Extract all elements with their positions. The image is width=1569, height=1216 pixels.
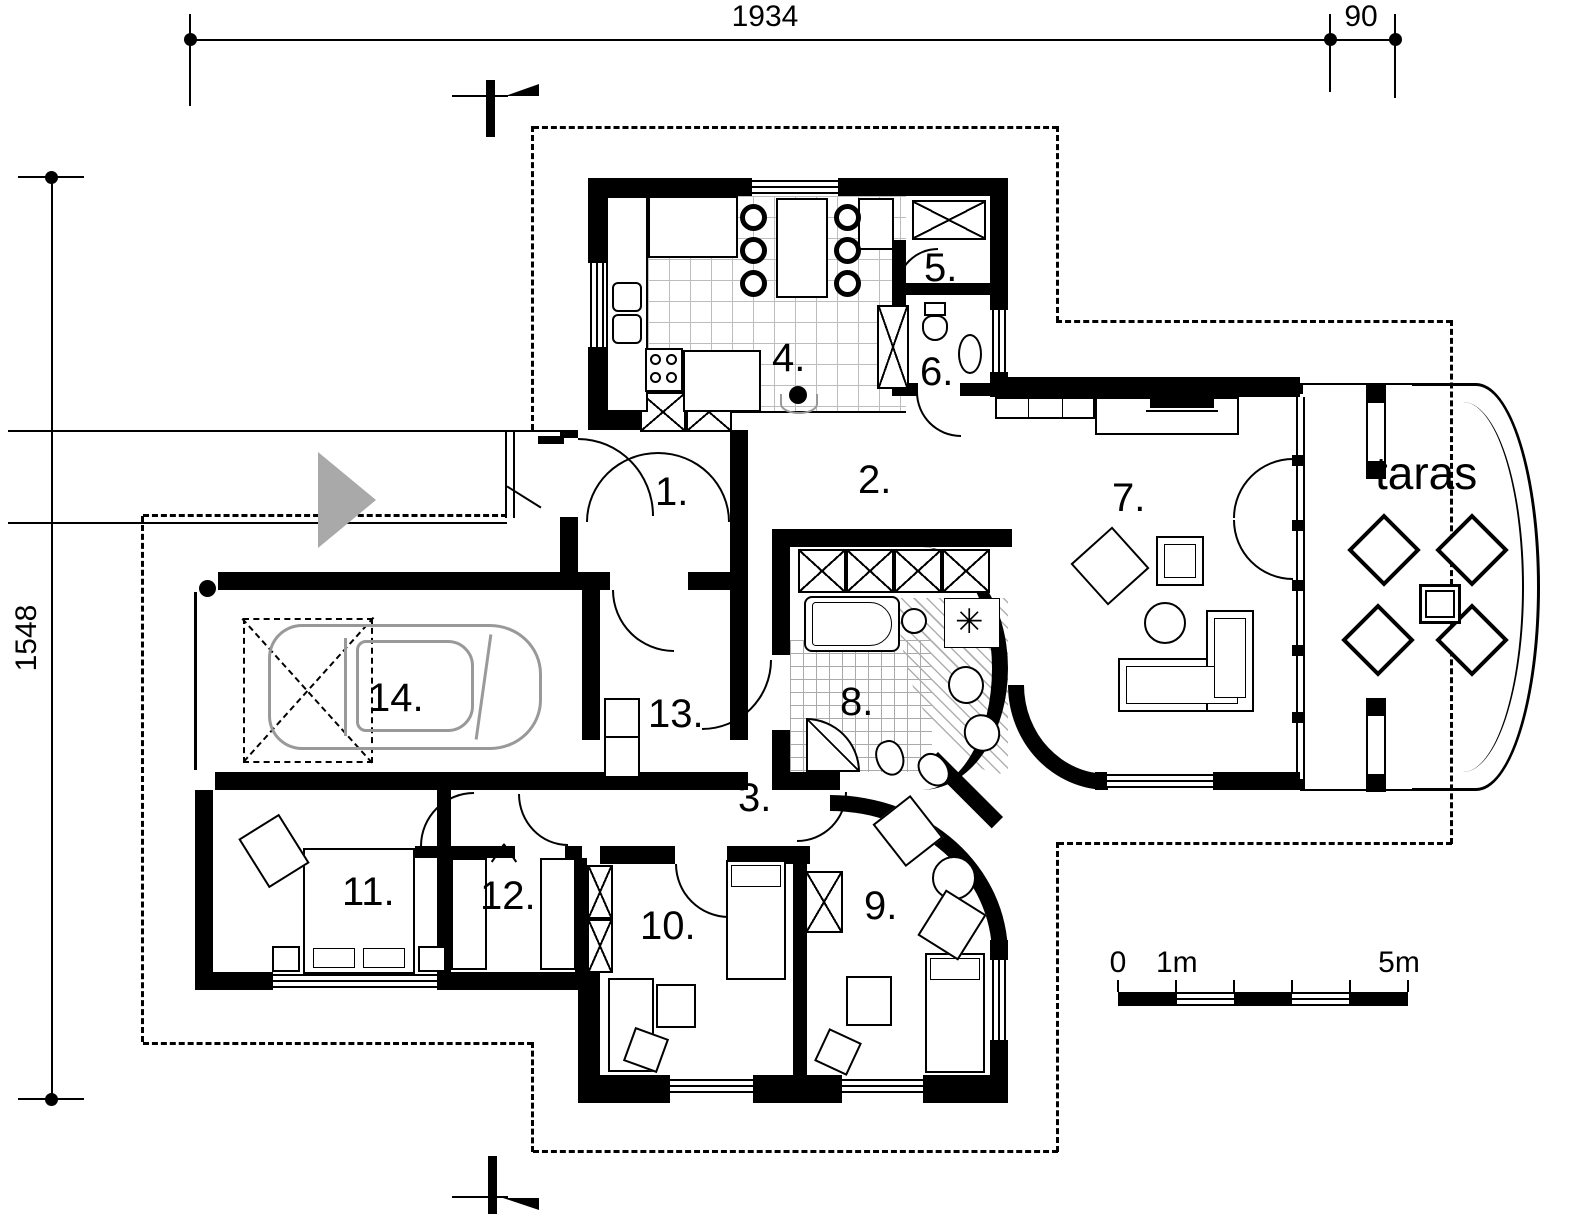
bathroom-closet [942, 549, 990, 593]
terrace-post-cap [1366, 774, 1386, 792]
tv-cabinet [995, 397, 1095, 419]
section-line-bottom [452, 1196, 508, 1198]
cabinet-divider [1062, 398, 1063, 418]
scale-label-0: 0 [1108, 948, 1128, 978]
dining-table [776, 198, 828, 298]
window [992, 960, 1006, 1040]
pillow [313, 948, 355, 968]
dim-tick [18, 176, 84, 178]
nightstand [272, 946, 300, 972]
chair [834, 204, 861, 231]
window [992, 310, 1006, 372]
window [842, 1079, 923, 1093]
tv-stand [1146, 410, 1218, 412]
chair [740, 237, 767, 264]
bathroom-closet [798, 549, 846, 593]
closet [877, 305, 909, 389]
door-swing-kitchen [916, 392, 961, 437]
wardrobe [805, 871, 843, 933]
parking-outline [243, 618, 245, 763]
room-label-6: 6. [920, 352, 953, 392]
bathroom-closet [894, 549, 942, 593]
wall [990, 1040, 1008, 1075]
room-label-13: 13. [648, 694, 704, 734]
top-dimension-line [190, 39, 1395, 41]
glazing-post [1292, 712, 1303, 723]
terrace-label: taras [1375, 450, 1477, 496]
toilet-bowl [922, 315, 948, 341]
wall [588, 178, 752, 196]
wall [990, 196, 1008, 310]
dim-tick [1394, 14, 1396, 98]
kitchen-counter [683, 350, 761, 412]
wall [772, 772, 840, 790]
sofa-seat [1214, 618, 1246, 698]
porch-step [507, 486, 542, 509]
terrace-edge [1300, 789, 1414, 791]
door-swing-room11 [420, 792, 474, 846]
glazing-post [1292, 455, 1303, 466]
wall [195, 790, 213, 972]
wardrobe [587, 865, 613, 919]
wall [772, 529, 1012, 547]
armchair-seat [1164, 544, 1196, 578]
toilet [924, 302, 946, 316]
dim-tick [18, 1098, 84, 1100]
roof-outline [1056, 842, 1059, 1152]
burner [666, 354, 677, 365]
door-swing-bathroom [702, 660, 772, 730]
roof-outline [533, 1150, 1058, 1153]
wall [990, 940, 1008, 960]
window [752, 180, 838, 194]
dim-width-label: 1934 [700, 2, 830, 32]
room-label-8: 8. [840, 682, 873, 722]
room-label-4: 4. [772, 338, 805, 378]
scale-tick [1233, 980, 1235, 992]
glazing-post [1292, 520, 1303, 531]
scale-seg [1234, 994, 1291, 1004]
washer [604, 698, 640, 778]
scale-seg [1177, 994, 1234, 1004]
dim-tick [189, 14, 191, 106]
roof-outline [533, 126, 1058, 129]
kitchen-sink [612, 282, 642, 312]
window [590, 263, 604, 347]
room-label-11: 11. [342, 872, 395, 912]
nightstand [418, 946, 446, 972]
wardrobe [587, 919, 613, 973]
wall [588, 412, 640, 430]
scale-tick [1407, 980, 1409, 992]
side-table [932, 856, 976, 900]
wall [923, 1075, 1008, 1103]
bathtub-inner [812, 602, 892, 646]
bathtub-tap [901, 608, 927, 634]
scale-label-1m: 1m [1156, 948, 1196, 978]
armchair [1070, 526, 1149, 605]
armchair [238, 814, 309, 889]
porch-edge [505, 430, 507, 518]
dim-tick [1329, 14, 1331, 92]
chair [834, 237, 861, 264]
roof-outline [531, 1042, 534, 1152]
scale-tick [1291, 980, 1293, 992]
desk [846, 976, 892, 1026]
wall [215, 772, 582, 790]
floor-arc [780, 394, 818, 414]
scale-tick [1117, 980, 1119, 992]
shelf [540, 858, 576, 970]
tv [1150, 399, 1214, 408]
floor-plan: 1934 90 1548 [0, 0, 1569, 1216]
wall [538, 436, 564, 444]
driveway-edge [8, 522, 507, 524]
wall [753, 1075, 842, 1103]
room-label-3: 3. [738, 778, 771, 818]
door-swing-room13 [612, 590, 674, 652]
wall [600, 846, 675, 864]
room-label-10: 10. [640, 906, 696, 946]
cabinet-divider [1028, 398, 1029, 418]
scale-seg [1292, 994, 1349, 1004]
door-swing-terrace [1233, 520, 1293, 580]
scale-tick [1175, 980, 1177, 992]
roof-outline [1056, 126, 1059, 322]
section-arrow-bottom [503, 1198, 539, 1210]
chair [740, 204, 767, 231]
pillow [731, 865, 781, 887]
vent-star-icon: ✳ [955, 605, 984, 639]
burner [650, 354, 661, 365]
wall [575, 858, 587, 972]
window [1107, 774, 1213, 788]
table [656, 984, 696, 1028]
driveway-edge [8, 430, 560, 432]
room-label-9: 9. [864, 886, 897, 926]
wall [838, 178, 1008, 196]
kitchen-counter [648, 196, 738, 258]
window [273, 974, 437, 988]
left-dimension-line [51, 178, 53, 1100]
room-label-2: 2. [858, 460, 891, 500]
section-arrow-top [505, 84, 539, 96]
room-label-5: 5. [924, 248, 957, 288]
wall [730, 430, 748, 572]
bathroom-closet [846, 549, 894, 593]
wall [588, 196, 606, 263]
door-swing-room12 [518, 794, 568, 846]
parking-outline [243, 618, 373, 620]
burner [666, 372, 677, 383]
wall [1095, 772, 1107, 790]
terrace-edge [1300, 383, 1414, 385]
porch-edge [513, 430, 515, 518]
glazing-post [1292, 645, 1303, 656]
roof-outline [143, 1042, 533, 1045]
pillow [363, 948, 405, 968]
curved-wall-living [1008, 685, 1108, 790]
window [670, 1079, 753, 1093]
driveway-arrow [318, 452, 376, 548]
scale-bar [1118, 992, 1408, 1006]
terrace-table-inner [1425, 590, 1455, 618]
wall [195, 972, 273, 990]
dim-height-label: 1548 [12, 583, 42, 693]
burner [650, 372, 661, 383]
roof-outline [531, 126, 534, 430]
roof-outline [141, 516, 144, 1042]
garage-door-line [194, 592, 197, 770]
door-swing-terrace [1233, 458, 1293, 518]
wall [565, 846, 582, 858]
roof-outline [1056, 320, 1452, 323]
parking-outline [243, 761, 373, 763]
wall [578, 1075, 670, 1103]
wall [582, 590, 600, 740]
scale-seg [1120, 994, 1177, 1004]
pillow [930, 958, 980, 980]
wall [1213, 772, 1300, 790]
chair [740, 270, 767, 297]
car-rear-window [344, 638, 347, 736]
wall [437, 972, 600, 990]
section-marker-top [486, 80, 495, 137]
terrace-glazing [1303, 397, 1305, 790]
washer-line [606, 736, 638, 738]
kitchen-sink [612, 314, 642, 344]
terrace-post-cap [1366, 385, 1386, 403]
glazing-post [1292, 580, 1303, 591]
room-label-14: 14. [368, 678, 424, 718]
scale-tick [1349, 980, 1351, 992]
scale-label-5m: 5m [1376, 948, 1422, 978]
room-label-7: 7. [1112, 478, 1145, 518]
wall [772, 547, 790, 655]
scale-seg [1349, 994, 1406, 1004]
coffee-table [1144, 602, 1186, 644]
wall [688, 572, 730, 590]
section-marker-bottom [488, 1156, 497, 1214]
wall [990, 377, 1300, 397]
chair [814, 1028, 862, 1076]
terrace-post-cap [1366, 698, 1386, 716]
roof-outline [1058, 842, 1452, 845]
wall [218, 572, 600, 590]
lamp-post-dot [199, 580, 216, 597]
section-line-top [452, 95, 508, 97]
room-label-1: 1. [655, 472, 688, 512]
pantry-shelf [912, 200, 986, 240]
washbasin [958, 334, 982, 374]
room-label-12: 12. [480, 876, 536, 916]
wall [578, 972, 600, 1075]
fridge [858, 198, 894, 250]
dim-offset-label: 90 [1336, 2, 1386, 32]
chair [834, 270, 861, 297]
